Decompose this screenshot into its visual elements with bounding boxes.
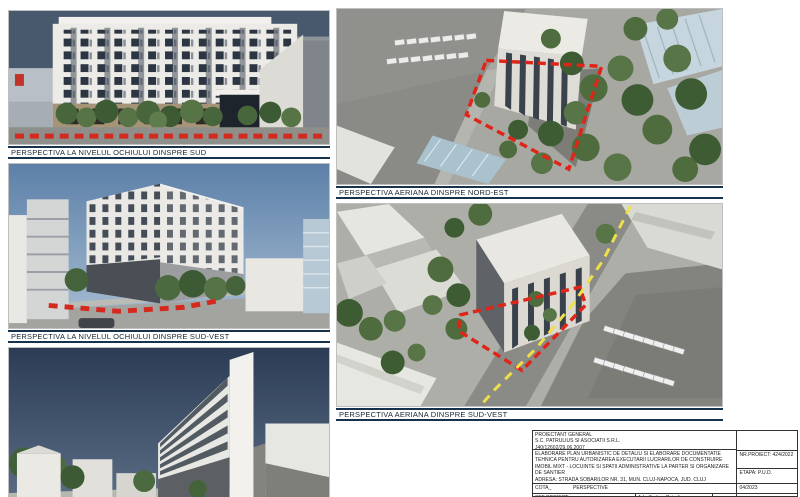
caption-text: PERSPECTIVA AERIANA DINSPRE SUD-VEST (339, 410, 507, 419)
caption-eye-level-south: PERSPECTIVA LA NIVELUL OCHIULUI DINSPRE … (8, 146, 330, 159)
chief-architect-label: SEF PROIECT (533, 494, 636, 496)
render-aerial-northeast-image (337, 9, 722, 184)
title-block: PROIECTANT GENERAL S.C. PATRULIUS SI ASO… (532, 430, 798, 497)
caption-eye-level-southwest: PERSPECTIVA LA NIVELUL OCHIULUI DINSPRE … (8, 330, 330, 343)
render-aerial-northeast (336, 8, 723, 185)
caption-text: PERSPECTIVA LA NIVELUL OCHIULUI DINSPRE … (11, 332, 229, 341)
render-street-view-image (9, 348, 329, 497)
project-title: ELABORARE PLAN URBANISTIC DE DETALIU SI … (535, 451, 734, 476)
render-eye-level-southwest-image (9, 164, 329, 328)
drawing-sheet: PERSPECTIVA LA NIVELUL OCHIULUI DINSPRE … (0, 0, 800, 497)
date-cell: 04/2023 (737, 484, 797, 494)
render-eye-level-south (8, 10, 330, 145)
empty-cell (737, 494, 797, 496)
caption-aerial-southwest: PERSPECTIVA AERIANA DINSPRE SUD-VEST (336, 408, 723, 421)
project-stage: ETAPA: P.U.D. (737, 469, 797, 484)
render-aerial-southwest (336, 203, 723, 407)
render-eye-level-south-image (9, 11, 329, 144)
render-street-view (8, 347, 330, 497)
caption-text: PERSPECTIVA AERIANA DINSPRE NORD-EST (339, 188, 509, 197)
chief-architect-name: Arh. Serban Patrulius (636, 494, 713, 496)
project-number: NR.PROIECT: 424/2022 (737, 451, 797, 470)
sheet-title: PERSPECTIVE (573, 485, 608, 491)
caption-text: PERSPECTIVA LA NIVELUL OCHIULUI DINSPRE … (11, 148, 206, 157)
caption-aerial-northeast: PERSPECTIVA AERIANA DINSPRE NORD-EST (336, 186, 723, 199)
render-eye-level-southwest (8, 163, 330, 329)
render-aerial-southwest-image (337, 204, 722, 406)
empty-cell (737, 431, 797, 451)
cota-label: COTA_ (535, 485, 573, 491)
signature-cell (713, 494, 736, 496)
